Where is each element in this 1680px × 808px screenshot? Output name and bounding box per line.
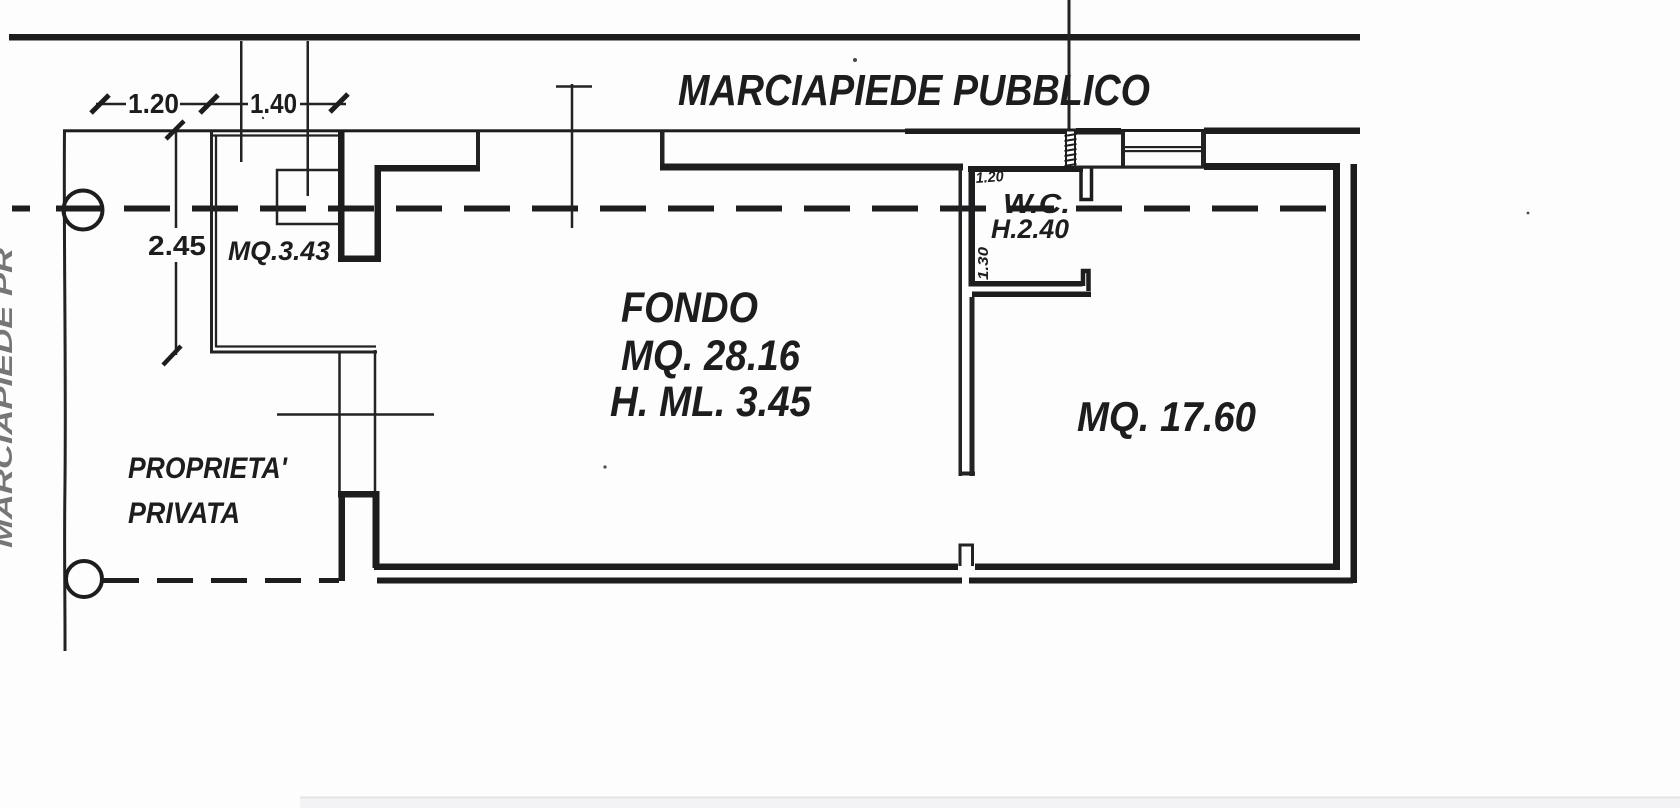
svg-text:1.20: 1.20 — [128, 88, 179, 119]
svg-text:FONDO: FONDO — [621, 284, 758, 332]
svg-text:H. ML. 3.45: H. ML. 3.45 — [610, 378, 812, 426]
svg-text:MQ. 17.60: MQ. 17.60 — [1077, 393, 1256, 441]
svg-text:2.45: 2.45 — [148, 230, 206, 261]
svg-text:PRIVATA: PRIVATA — [128, 497, 240, 530]
svg-text:MARCIAPIEDE PR: MARCIAPIEDE PR — [0, 248, 18, 548]
svg-text:MQ.3.43: MQ.3.43 — [228, 236, 330, 266]
svg-text:H.2.40: H.2.40 — [991, 214, 1069, 244]
svg-text:MQ. 28.16: MQ. 28.16 — [621, 332, 801, 380]
svg-text:1.20: 1.20 — [975, 168, 1005, 187]
svg-text:1.30: 1.30 — [975, 246, 992, 280]
svg-text:MARCIAPIEDE PUBBLICO: MARCIAPIEDE PUBBLICO — [678, 66, 1150, 115]
svg-text:PROPRIETA': PROPRIETA' — [128, 452, 288, 485]
svg-text:1.40: 1.40 — [250, 88, 297, 119]
